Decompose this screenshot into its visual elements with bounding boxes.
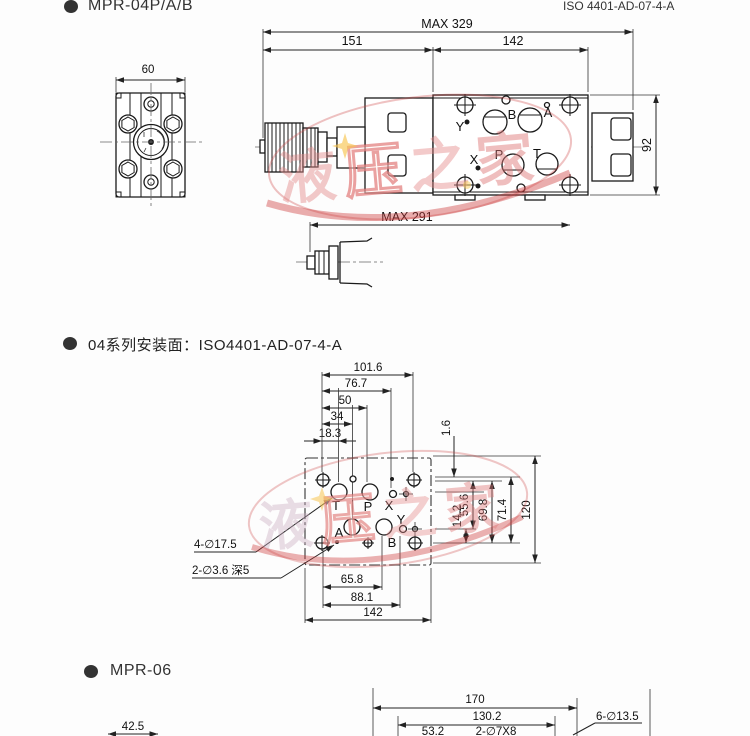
dim-55-6: 55.6 xyxy=(459,494,471,516)
mount-port-b: B xyxy=(388,535,397,550)
dim-101-6: 101.6 xyxy=(354,362,383,374)
marker-defs xyxy=(0,0,2,2)
dim-151: 151 xyxy=(342,34,363,48)
mount-port-x: X xyxy=(385,498,394,513)
dim-53-2: 53.2 xyxy=(422,726,444,736)
section3-bullet-icon xyxy=(84,665,98,678)
mount-port-y: Y xyxy=(397,512,406,527)
dim-142-bottom: 142 xyxy=(363,607,382,619)
port-label-t: T xyxy=(533,146,541,161)
mounting-right-dimensions: 1.6 14.2 55.6 69.8 71.4 120 xyxy=(433,420,541,563)
mpr06-drawing: 42.5 170 130.2 53.2 2-∅7X8 6-∅13.5 xyxy=(80,686,700,736)
label-6-13-5: 6-∅13.5 xyxy=(596,711,639,723)
section3-title: MPR-06 xyxy=(110,662,172,680)
datasheet-page: MPR-04P/A/B ISO 4401-AD-07-4-A 60 xyxy=(0,0,750,736)
label-2-7x8: 2-∅7X8 xyxy=(476,726,517,736)
dim-1-6: 1.6 xyxy=(441,420,453,436)
mount-port-p: P xyxy=(364,499,373,514)
front-view-body xyxy=(116,93,185,197)
mount-port-a: A xyxy=(335,525,344,540)
label-2-holes: 2-∅3.6 深5 xyxy=(192,563,249,577)
dim-max-329: MAX 329 xyxy=(421,17,472,31)
dim-88-1: 88.1 xyxy=(351,592,373,604)
dim-142: 142 xyxy=(503,34,524,48)
dim-34: 34 xyxy=(331,411,344,423)
section1-bullet-icon xyxy=(64,0,78,13)
dim-71-4: 71.4 xyxy=(497,498,509,521)
port-label-a: A xyxy=(544,105,553,120)
dim-50: 50 xyxy=(339,395,352,407)
top-view-valve-body xyxy=(255,95,647,200)
port-label-b: B xyxy=(508,107,517,122)
section1-title: MPR-04P/A/B xyxy=(88,0,193,15)
port-label-x: X xyxy=(470,152,479,167)
dim-130-2: 130.2 xyxy=(473,711,502,723)
dim-76-7: 76.7 xyxy=(345,378,367,390)
front-view-drawing: 60 xyxy=(88,55,218,210)
dim-170: 170 xyxy=(465,694,484,706)
dim-65-8: 65.8 xyxy=(341,574,363,586)
dim-120: 120 xyxy=(521,500,533,519)
dim-92: 92 xyxy=(640,138,654,152)
section2-bullet-icon xyxy=(63,337,77,350)
side-view-drawing: MAX 291 xyxy=(288,206,588,290)
top-view-drawing: MAX 329 151 142 92 xyxy=(255,12,675,208)
front-view-dimensions: 60 xyxy=(116,64,185,92)
side-view-screw xyxy=(296,238,383,287)
mounting-holes: T P X A B Y xyxy=(314,472,423,551)
dim-max-291: MAX 291 xyxy=(381,210,432,224)
dim-width-60: 60 xyxy=(142,64,155,76)
dim-69-8: 69.8 xyxy=(478,499,490,521)
mount-port-t: T xyxy=(332,498,340,513)
port-label-p: P xyxy=(495,147,504,162)
mounting-face-drawing: 101.6 76.7 50 34 18.3 xyxy=(178,352,558,630)
mounting-leaders: 4-∅17.5 2-∅3.6 深5 xyxy=(192,498,334,578)
port-label-y: Y xyxy=(456,119,465,134)
label-4-holes: 4-∅17.5 xyxy=(194,539,237,551)
dim-42-5: 42.5 xyxy=(122,721,144,733)
